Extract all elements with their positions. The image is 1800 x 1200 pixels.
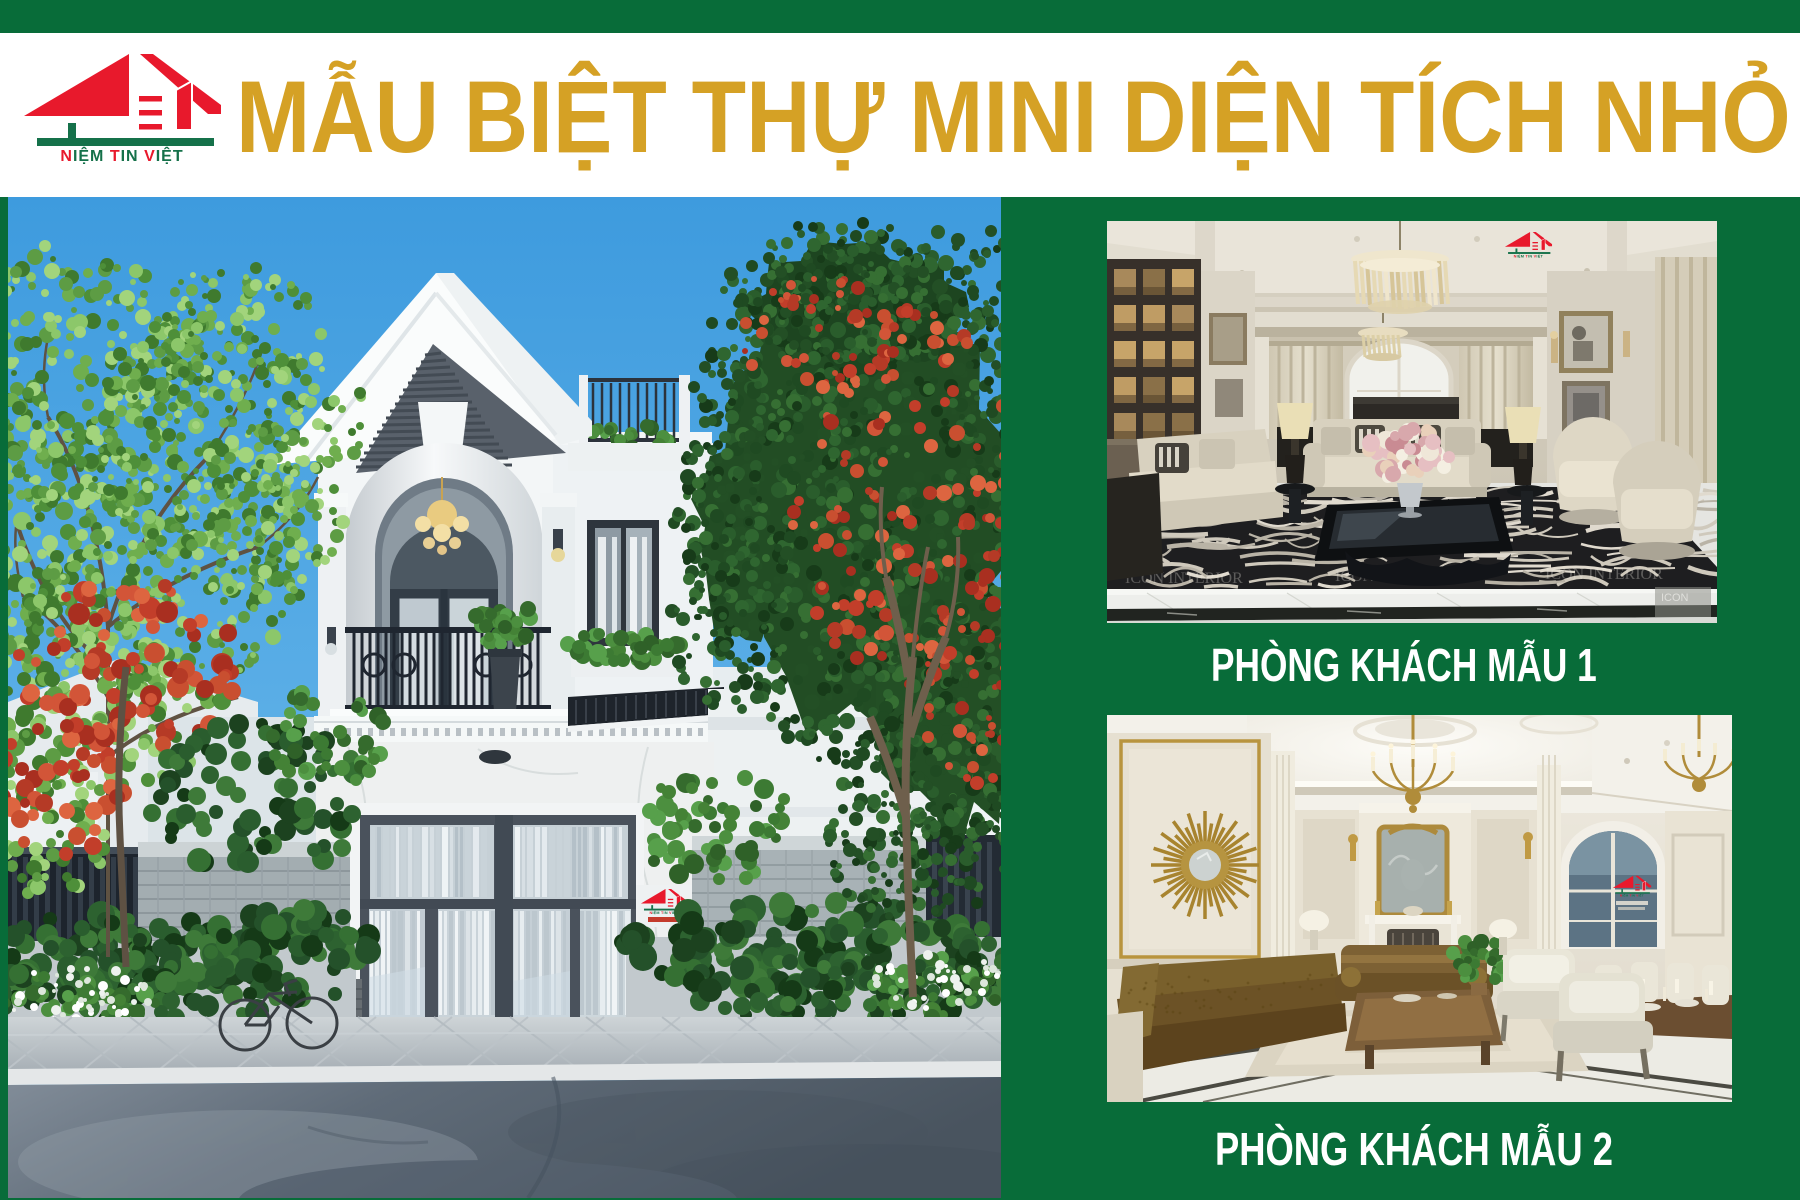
svg-text:ICON: ICON	[1661, 592, 1689, 604]
svg-text:ICON INTERIOR: ICON INTERIOR	[1545, 566, 1663, 583]
